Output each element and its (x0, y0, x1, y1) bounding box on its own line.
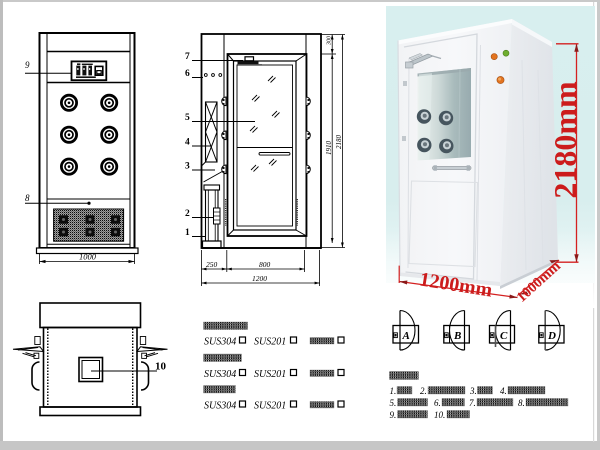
svg-text:1200: 1200 (252, 274, 267, 283)
svg-text:5.: 5. (390, 398, 397, 408)
svg-text:1000: 1000 (79, 252, 97, 262)
svg-text:9.: 9. (390, 410, 397, 420)
svg-text:8: 8 (25, 193, 30, 203)
svg-text:SUS201: SUS201 (254, 401, 286, 412)
svg-text:10: 10 (155, 361, 167, 373)
svg-text:2180mm: 2180mm (547, 81, 583, 199)
svg-text:SUS304: SUS304 (204, 337, 236, 348)
svg-text:300: 300 (327, 36, 333, 46)
svg-text:1.: 1. (390, 386, 397, 396)
svg-text:8.: 8. (518, 398, 525, 408)
svg-text:C: C (500, 330, 508, 342)
svg-text:3.: 3. (469, 386, 477, 396)
svg-text:800: 800 (259, 260, 271, 269)
svg-text:10.: 10. (434, 410, 445, 420)
svg-text:4.: 4. (500, 386, 507, 396)
svg-text:7.: 7. (469, 398, 476, 408)
svg-text:A: A (402, 330, 410, 342)
svg-text:1: 1 (185, 228, 190, 238)
svg-text:2: 2 (185, 209, 190, 219)
svg-text:5: 5 (185, 113, 190, 123)
svg-text:9: 9 (25, 60, 30, 70)
svg-text:250: 250 (206, 260, 218, 269)
svg-text:B: B (453, 330, 461, 342)
svg-text:1910: 1910 (325, 141, 333, 156)
svg-text:SUS201: SUS201 (254, 337, 286, 348)
svg-text:SUS201: SUS201 (254, 369, 286, 380)
svg-text:3: 3 (185, 162, 190, 172)
svg-text:2180: 2180 (335, 135, 343, 150)
svg-text:D: D (547, 330, 556, 342)
svg-text:4: 4 (185, 138, 190, 148)
svg-text:6: 6 (185, 69, 190, 79)
svg-text:2.: 2. (420, 386, 427, 396)
svg-text:SUS304: SUS304 (204, 401, 236, 412)
svg-text:6.: 6. (434, 398, 441, 408)
svg-text:SUS304: SUS304 (204, 369, 236, 380)
svg-text:7: 7 (185, 52, 190, 62)
